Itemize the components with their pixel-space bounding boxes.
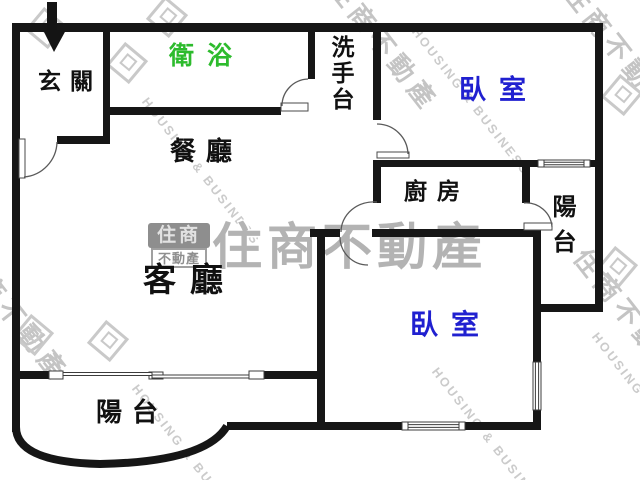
room-labels: 玄關 衛浴 洗手台 臥室 餐廳 廚房 陽台 客廳 臥室 陽台 (0, 0, 640, 480)
bedroom-top-label: 臥室 (459, 77, 539, 104)
kitchen-label: 廚房 (404, 180, 470, 203)
entry-label: 玄關 (38, 70, 102, 93)
bedroom-bottom-label: 臥室 (410, 311, 492, 339)
dining-label: 餐廳 (170, 138, 242, 164)
floor-plan: HOUSING & BUSINESS HOUSING & BUSINESS HO… (0, 0, 640, 480)
washbasin-label: 洗手台 (329, 35, 352, 113)
balcony-right-label: 陽台 (549, 194, 573, 264)
living-label: 客廳 (143, 263, 237, 296)
bathroom-label: 衛浴 (169, 44, 245, 69)
balcony-bottom-label: 陽台 (96, 399, 168, 425)
